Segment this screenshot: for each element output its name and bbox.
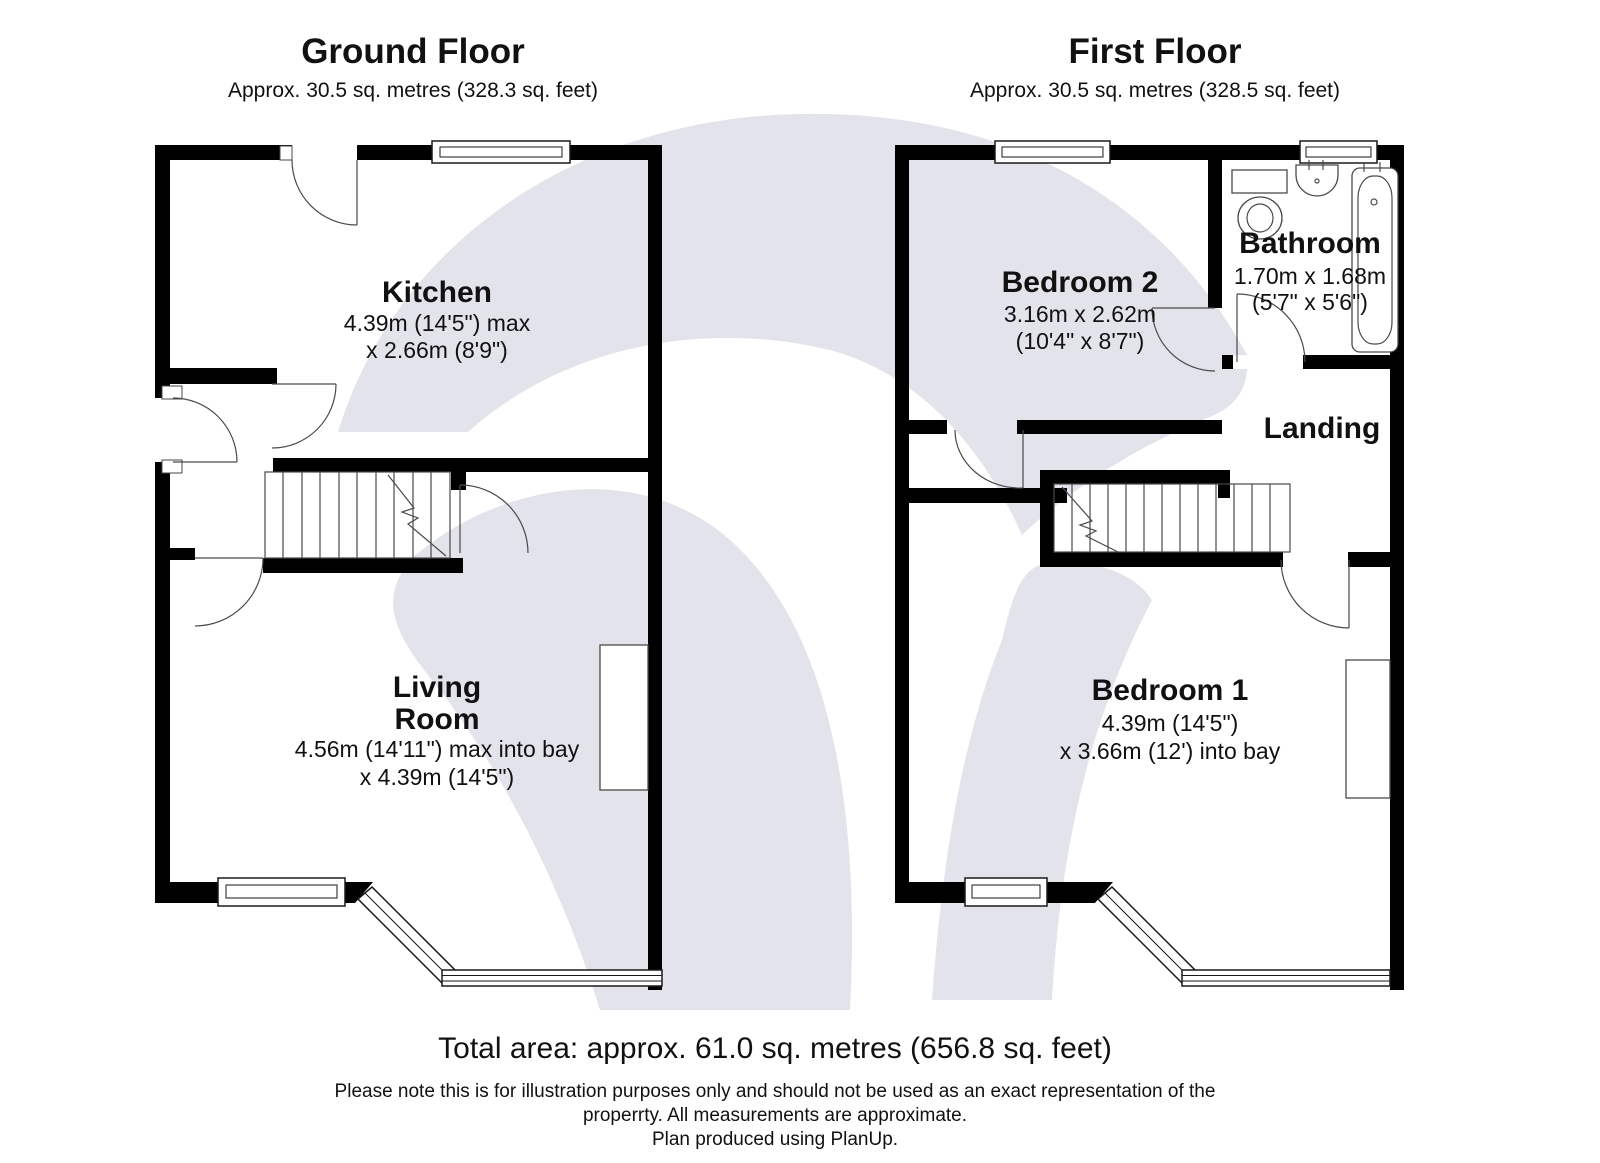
bedroom1-name: Bedroom 1 xyxy=(1092,674,1249,707)
floorplan-page: Ground Floor Approx. 30.5 sq. metres (32… xyxy=(0,0,1600,1163)
watermark-right-swoosh xyxy=(932,563,1152,1000)
bedroom1-furniture xyxy=(1346,660,1390,798)
bedroom1-window xyxy=(965,878,1047,906)
bedroom1-dim2: x 3.66m (12') into bay xyxy=(1060,738,1281,764)
bathroom-label: Bathroom 1.70m x 1.68m (5'7" x 5'6") xyxy=(1234,227,1386,315)
bathroom-dim1: 1.70m x 1.68m xyxy=(1234,263,1386,289)
bathroom-dim2: (5'7" x 5'6") xyxy=(1252,289,1368,315)
bedroom2-window xyxy=(995,141,1110,163)
disclaimer-line3: Plan produced using PlanUp. xyxy=(652,1129,898,1150)
bedroom2-name: Bedroom 2 xyxy=(1002,266,1159,299)
kitchen-window xyxy=(432,141,570,163)
front-door-jamb-top xyxy=(162,386,182,399)
living-room-dim1: 4.56m (14'11") max into bay xyxy=(295,736,580,762)
floorplan-drawing: Ground Floor Approx. 30.5 sq. metres (32… xyxy=(0,0,1600,1163)
living-room-name2: Room xyxy=(395,703,480,736)
kitchen-hall-door xyxy=(272,384,336,448)
bedroom2-dim1: 3.16m x 2.62m xyxy=(1004,301,1156,327)
kitchen-dim1: 4.39m (14'5") max xyxy=(344,310,531,336)
ground-floor-title: Ground Floor xyxy=(301,32,525,71)
landing-name: Landing xyxy=(1264,412,1381,445)
disclaimer-line2: properrty. All measurements are approxim… xyxy=(583,1105,967,1126)
bedroom1-dim1: 4.39m (14'5") xyxy=(1102,710,1239,736)
living-room-door xyxy=(195,558,263,626)
bedroom2-dim2: (10'4" x 8'7") xyxy=(1016,328,1145,354)
ground-floor-stairs xyxy=(265,472,450,558)
kitchen-dim2: x 2.66m (8'9") xyxy=(366,337,508,363)
living-room-dim2: x 4.39m (14'5") xyxy=(360,764,514,790)
bedroom1-door xyxy=(1281,560,1349,628)
ground-floor-area: Approx. 30.5 sq. metres (328.3 sq. feet) xyxy=(228,79,598,102)
bedroom1-bay-window xyxy=(1098,887,1390,986)
front-door xyxy=(173,398,237,462)
living-room-window xyxy=(218,878,345,906)
footer: Total area: approx. 61.0 sq. metres (656… xyxy=(335,1032,1216,1150)
kitchen-back-door xyxy=(292,160,357,225)
total-area-text: Total area: approx. 61.0 sq. metres (656… xyxy=(438,1032,1112,1065)
first-floor-area: Approx. 30.5 sq. metres (328.5 sq. feet) xyxy=(970,79,1340,102)
bathroom-name: Bathroom xyxy=(1239,227,1381,260)
first-floor-stairs xyxy=(1054,484,1290,552)
bedroom2-label: Bedroom 2 3.16m x 2.62m (10'4" x 8'7") xyxy=(1002,266,1159,354)
living-room-name1: Living xyxy=(393,671,481,704)
first-floor-title: First Floor xyxy=(1068,32,1241,71)
kitchen-name: Kitchen xyxy=(382,276,492,309)
kitchen-door-jamb xyxy=(280,146,292,160)
disclaimer-line1: Please note this is for illustration pur… xyxy=(335,1081,1216,1102)
sink xyxy=(1296,160,1338,196)
bathroom-window xyxy=(1300,141,1377,163)
living-room-furniture xyxy=(600,645,648,790)
